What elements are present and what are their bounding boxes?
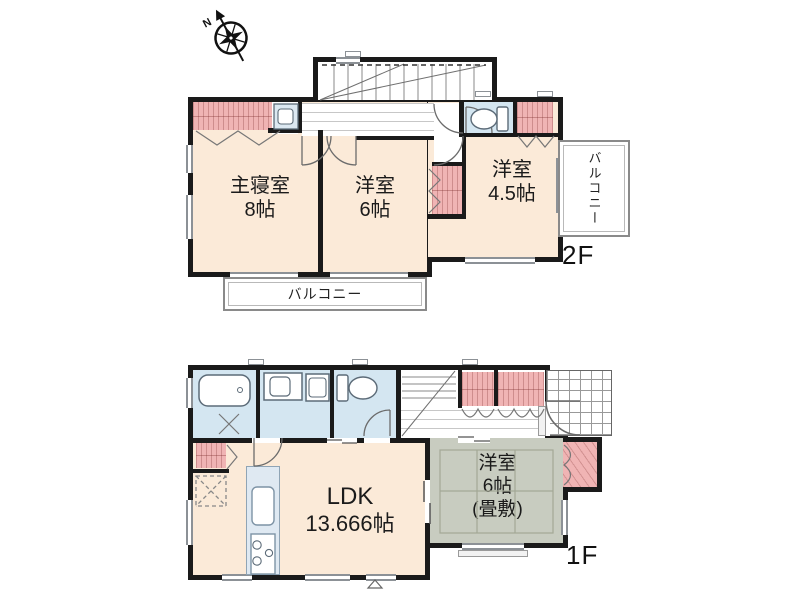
vent-toilet-1f [352,359,368,365]
f2-partition-corridor [356,136,434,140]
f2-hall-stub-upper [434,103,459,136]
f2-partition-toilet-bottom [462,133,518,137]
window-tatami-south [462,543,524,550]
window-ldk-left [186,500,193,545]
toilet-2f [464,102,513,133]
f1-partition-toilet-stairs [396,368,401,443]
vent-bathroom [248,359,264,365]
closet-entrance-a [462,372,494,406]
hall-1f [400,410,545,436]
window-ldk-bottom-b [305,574,350,581]
f2-partition-toilet-left [459,100,464,137]
compass-icon: N [200,4,262,68]
window-ldk-bottom-a [222,574,252,581]
f1-partition-stairs-closet [458,368,462,408]
f1-partition-ldk-closet [193,469,229,473]
window-f2-master-left [186,195,193,239]
tatami-veranda-step [458,550,528,557]
window-f2-west45-south [465,257,535,264]
toilet-1f [334,370,396,438]
closet-entrance-b [498,372,544,406]
f2-partition-closetb-bottom [428,214,466,219]
window-bathroom [186,378,193,408]
floor-label-1f: 1F [566,540,598,571]
balcony-bottom: バルコニー [223,277,427,311]
vent-f2-closet [537,91,553,97]
window-tatami-right [561,500,568,535]
stairs-1f-area [400,370,458,408]
doorway-hall-tatami [458,434,490,443]
floor-plan-canvas: N バルコニー バルコニー [0,0,800,600]
entrance-step [538,406,546,436]
entrance-porch [546,370,612,436]
doorway-toilet-ldk [364,438,390,443]
doorway-washroom-ldk [252,438,280,443]
floor-label-2f: 2F [562,240,594,271]
f2-partition-toilet-right [513,100,517,137]
tatami-label: 洋室 6帖 (畳敷) [440,452,555,522]
vent-f2-stairs [345,51,361,57]
closet-ldk [196,443,226,468]
balcony-right-label: バルコニー [585,151,604,226]
window-f2-stairs [336,57,360,64]
master-bedroom-label: 主寝室 8帖 [198,174,322,223]
window-ldk-bottom-c [366,574,396,581]
ldk-label: LDK 13.666帖 [268,482,432,538]
vent-f2-toilet [475,91,491,97]
balcony-bottom-label: バルコニー [288,284,363,304]
closet-master-bedroom [193,102,272,130]
bathroom [193,370,256,438]
f1-partition-wash-toilet [330,370,334,438]
closet-tatami [563,442,597,487]
f2-partition-vanity [268,128,302,133]
west6-label: 洋室 6帖 [330,174,420,223]
f2-stairwell [318,62,492,100]
f2-partition-vanity-side [298,100,302,133]
doorway-hall-ldk [327,438,357,443]
f1-partition-bath-wash [256,370,260,438]
compass-north-label: N [201,16,214,30]
f2-partition-closetc-bottom [517,133,558,137]
closet-west45 [517,102,553,133]
f1-partition-closets [494,370,498,406]
washroom [260,370,330,438]
window-f2-left-upper [186,145,193,173]
west45-label: 洋室 4.5帖 [452,158,572,207]
vent-closet-1f [462,359,478,365]
